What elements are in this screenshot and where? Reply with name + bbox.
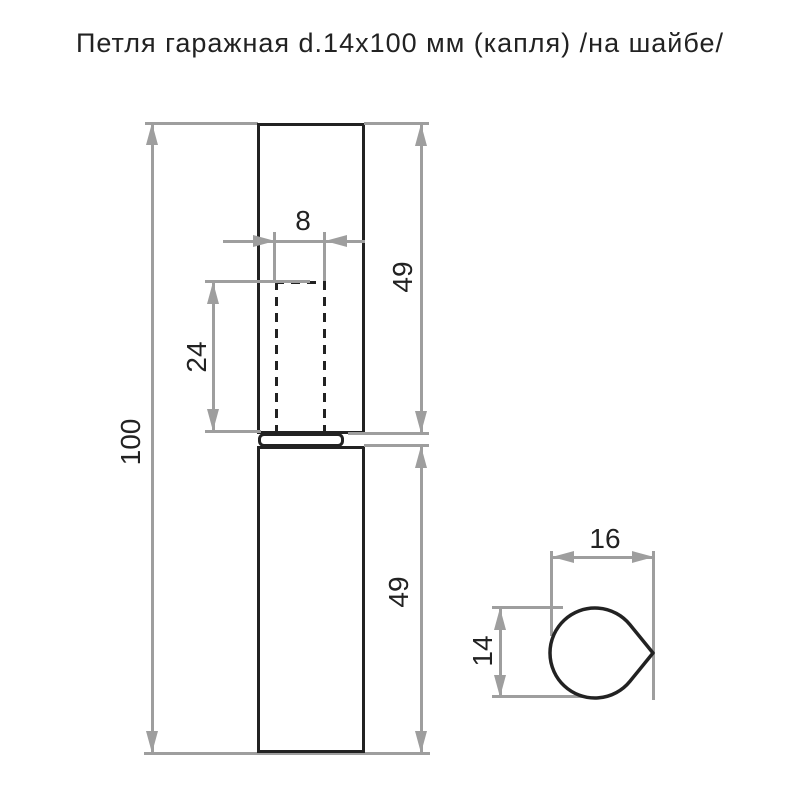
dim-8-label: 8 bbox=[283, 206, 323, 236]
dim-24-label: 24 bbox=[182, 322, 212, 392]
dim-100-arrow-down bbox=[146, 731, 158, 753]
dim-24-arrow-down bbox=[207, 409, 219, 431]
dim-49-lower-label: 49 bbox=[384, 557, 414, 627]
dim-8-arrow-left bbox=[253, 235, 275, 247]
dim-49-upper-label: 49 bbox=[388, 242, 418, 312]
dim-100-extension-top bbox=[145, 122, 258, 125]
dim-24-arrow-up bbox=[207, 282, 219, 304]
dim-49-upper-arrow-up bbox=[415, 124, 427, 146]
dim-16-label: 16 bbox=[585, 524, 625, 554]
dim-100-arrow-up bbox=[146, 123, 158, 145]
page-title: Петля гаражная d.14x100 мм (капля) /на ш… bbox=[0, 28, 800, 59]
dim-49-lower-arrow-down bbox=[415, 731, 427, 753]
pin-hole-dashed-left bbox=[275, 281, 278, 431]
dim-100-line bbox=[151, 124, 154, 753]
washer-outline bbox=[258, 433, 344, 447]
pin-hole-dashed-right bbox=[323, 281, 326, 431]
dim-24-extension-top bbox=[205, 280, 310, 283]
dim-49-upper-line bbox=[420, 124, 423, 434]
lower-leaf-outline bbox=[257, 446, 365, 753]
dim-49-lower-line bbox=[420, 446, 423, 753]
dim-100-label: 100 bbox=[116, 407, 146, 477]
dim-49-lower-arrow-up bbox=[415, 446, 427, 468]
drawing-canvas: Петля гаражная d.14x100 мм (капля) /на ш… bbox=[0, 0, 800, 800]
drop-profile-outline bbox=[480, 560, 700, 720]
dim-49-upper-arrow-down bbox=[415, 411, 427, 433]
dim-8-arrow-right bbox=[325, 235, 347, 247]
